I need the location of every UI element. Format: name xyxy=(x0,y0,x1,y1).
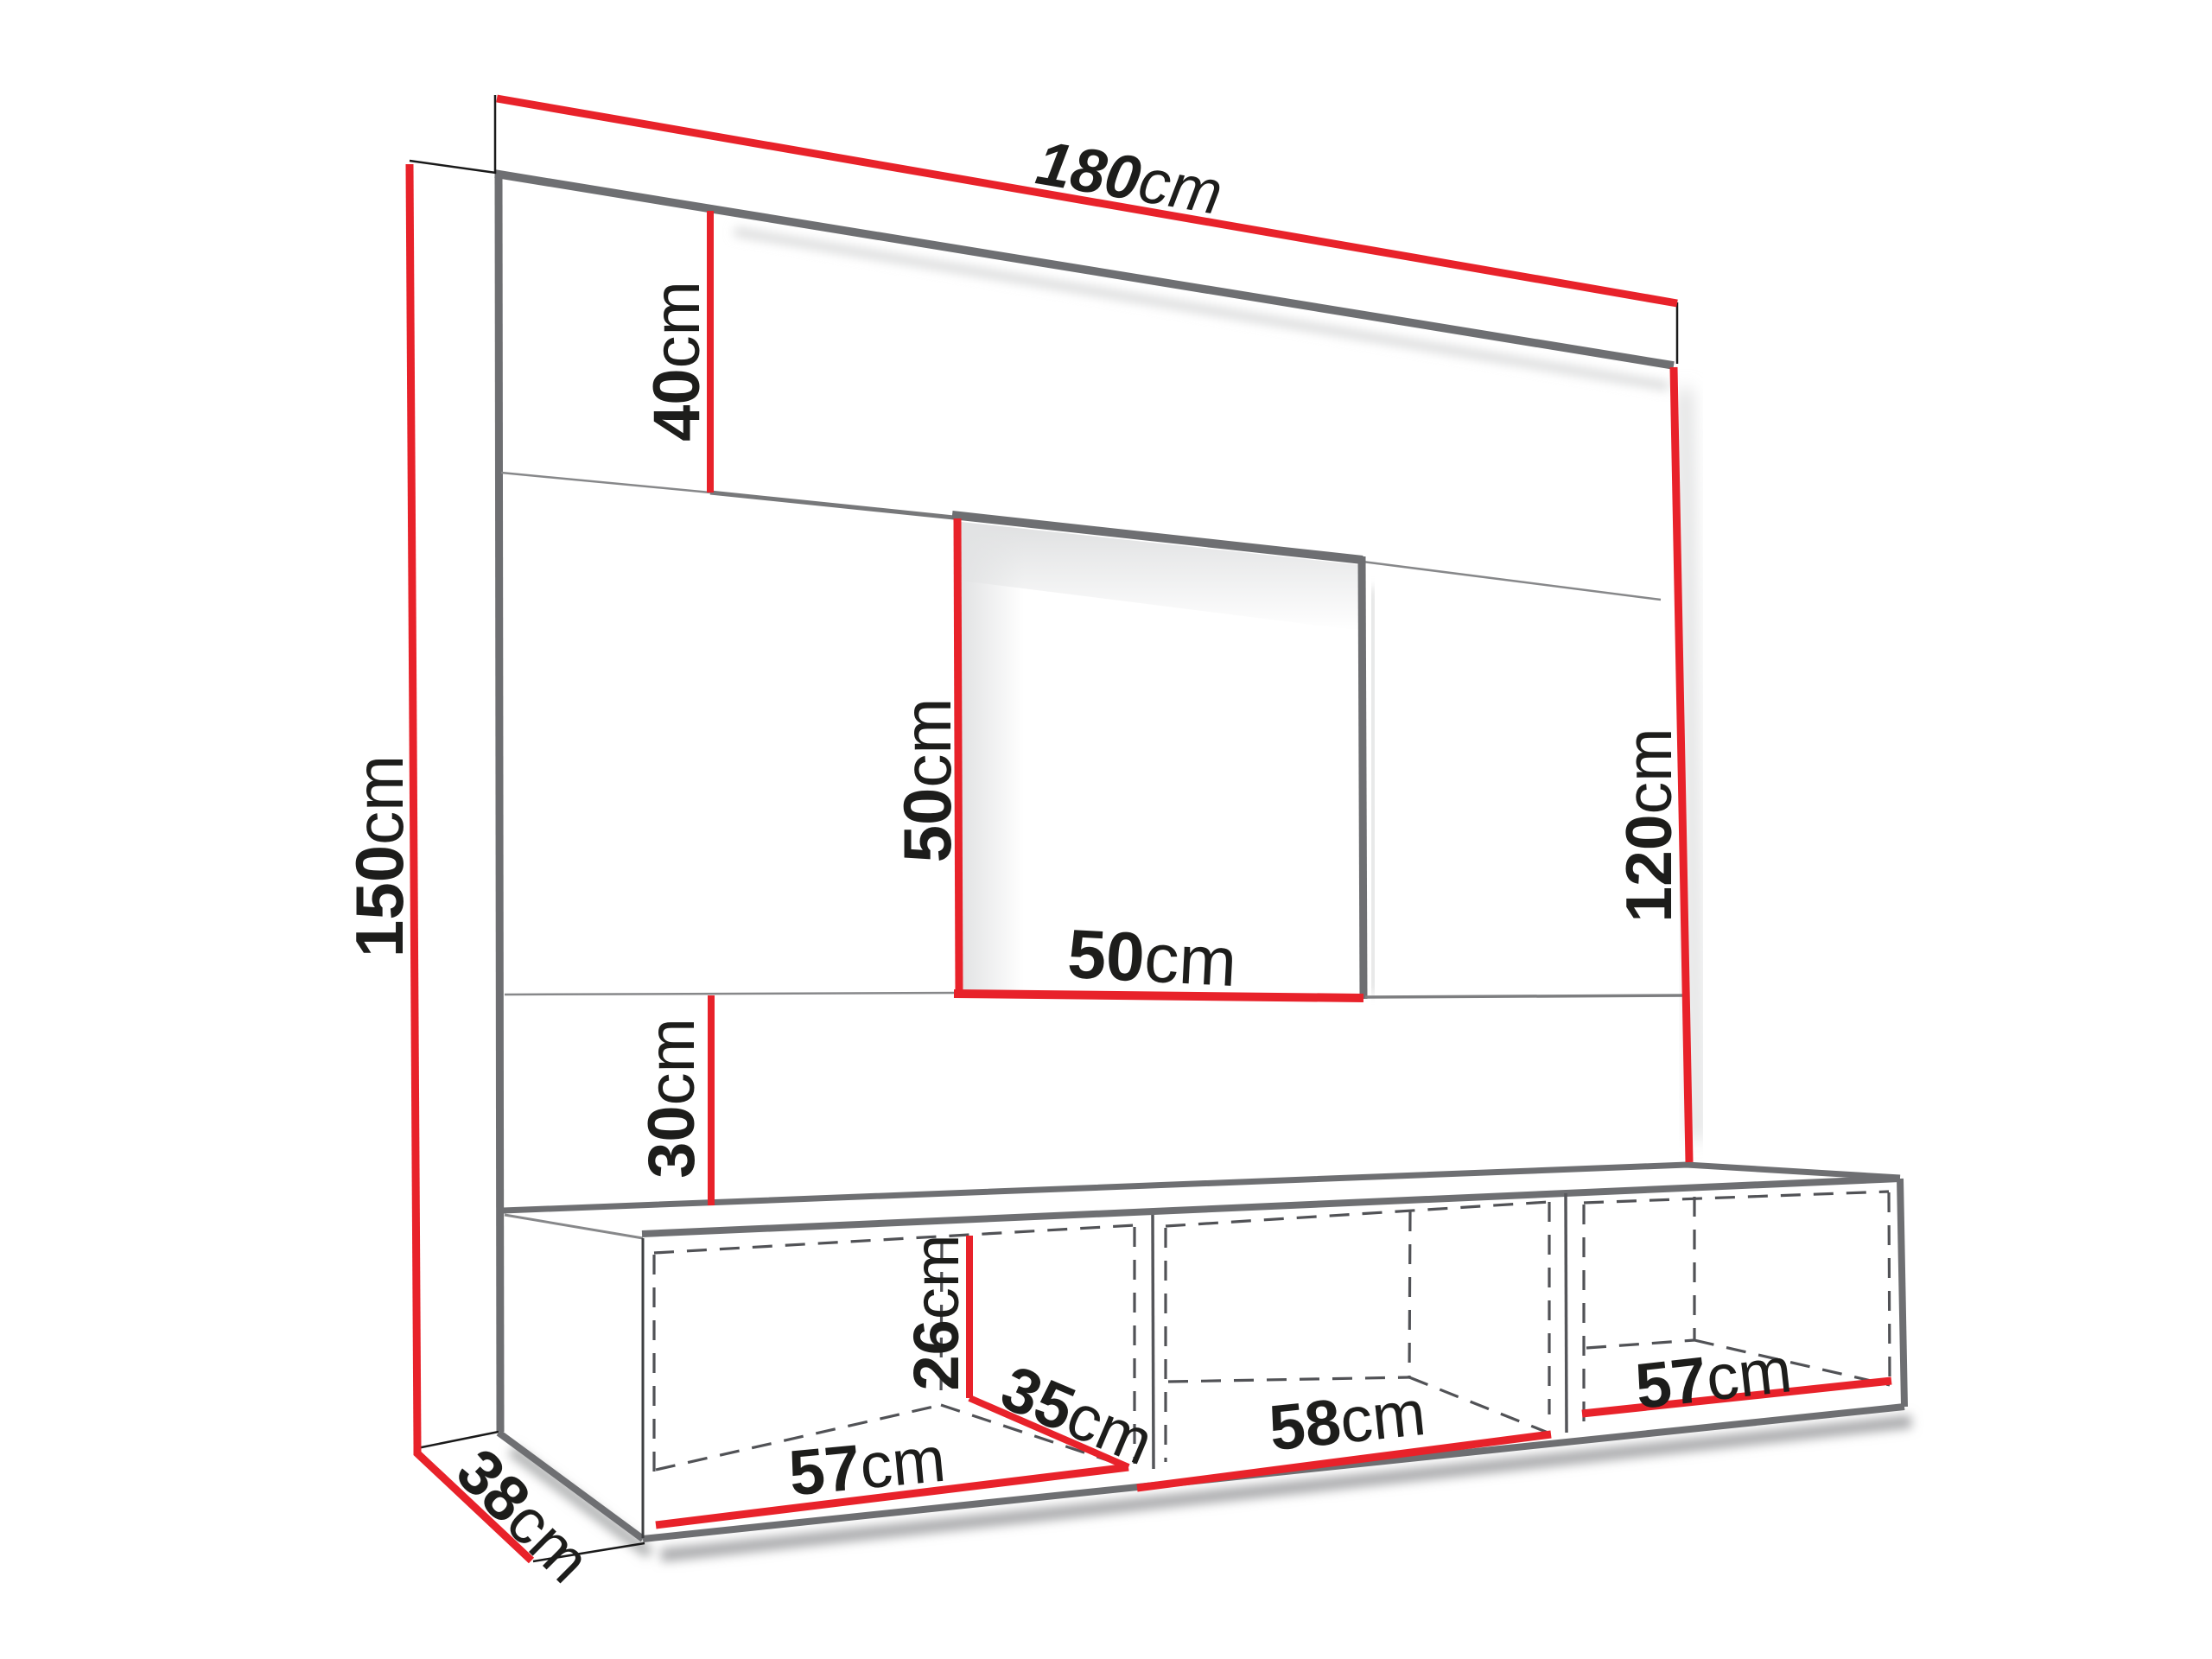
svg-text:150cm: 150cm xyxy=(341,755,417,957)
svg-text:26cm: 26cm xyxy=(900,1235,972,1391)
svg-text:120cm: 120cm xyxy=(1612,728,1685,922)
svg-text:35cm: 35cm xyxy=(991,1351,1163,1478)
svg-text:40cm: 40cm xyxy=(640,281,714,442)
svg-text:180cm: 180cm xyxy=(1032,129,1228,229)
svg-text:57cm: 57cm xyxy=(786,1423,949,1510)
svg-text:50cm: 50cm xyxy=(1065,915,1238,1001)
svg-text:50cm: 50cm xyxy=(889,698,965,863)
svg-text:57cm: 57cm xyxy=(1632,1333,1796,1422)
svg-text:30cm: 30cm xyxy=(635,1018,709,1179)
